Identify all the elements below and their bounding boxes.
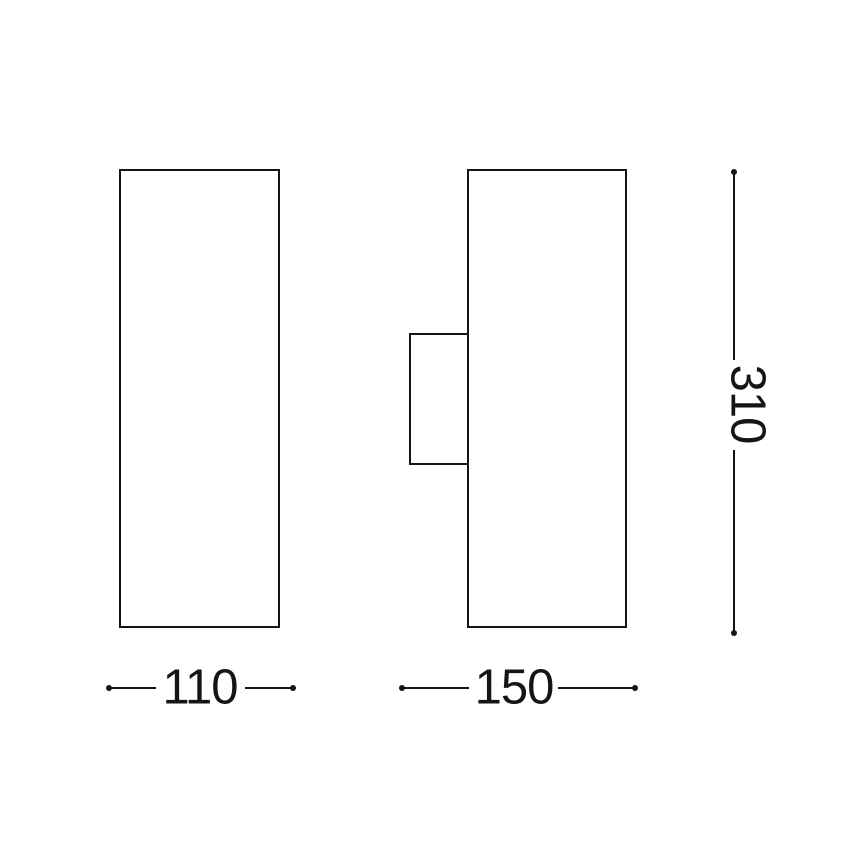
dimension-label-height: 310: [723, 365, 772, 444]
wall-mount-bracket-outline: [409, 333, 467, 465]
dimension-line: [558, 687, 635, 689]
dimension-line: [733, 172, 735, 360]
dimension-line: [402, 687, 469, 689]
dimension-line: [109, 687, 156, 689]
dimension-endpoint-dot: [731, 630, 737, 636]
front-view-outline: [119, 169, 280, 628]
dimension-endpoint-dot: [632, 685, 638, 691]
dimension-line: [245, 687, 293, 689]
dimension-label-side-width: 150: [475, 664, 554, 713]
side-view-outline: [467, 169, 627, 628]
dimension-drawing: 110 150 310: [0, 0, 868, 868]
dimension-endpoint-dot: [290, 685, 296, 691]
dimension-label-front-width: 110: [162, 664, 237, 713]
dimension-line: [733, 450, 735, 633]
